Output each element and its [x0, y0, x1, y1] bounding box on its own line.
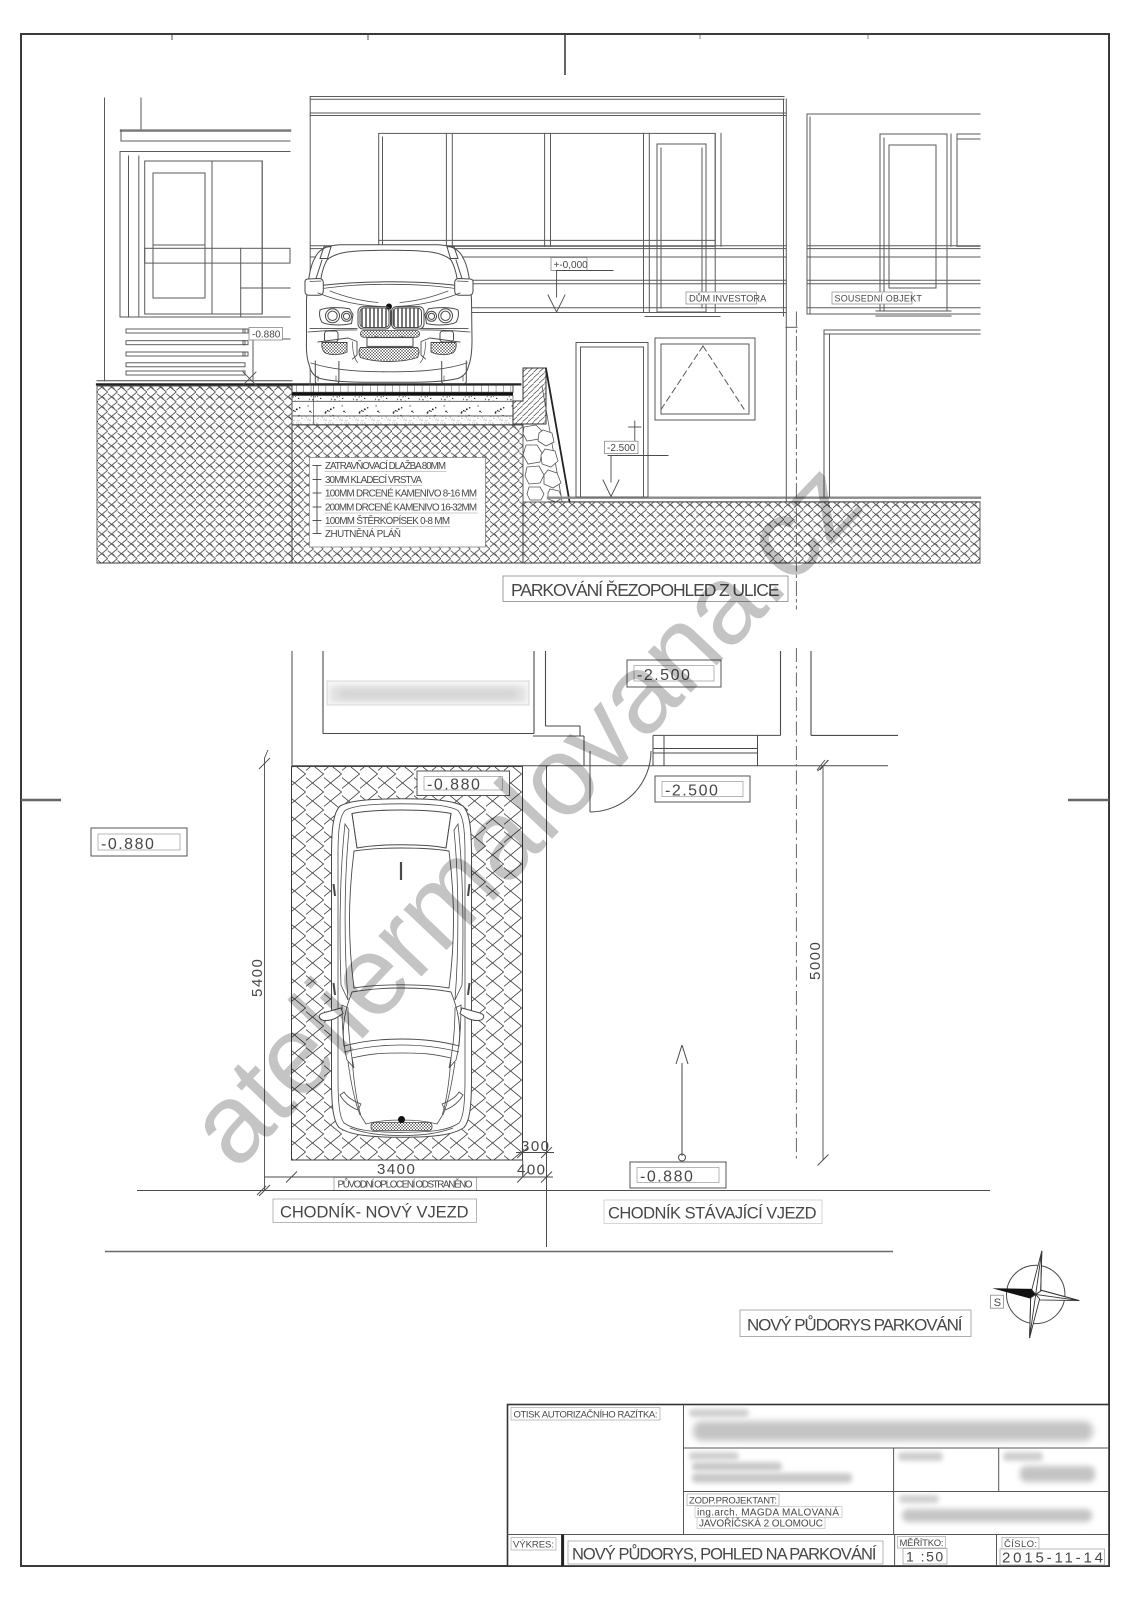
svg-text:OTISK AUTORIZAČNÍHO RAZÍTKA:: OTISK AUTORIZAČNÍHO RAZÍTKA:: [514, 1410, 658, 1421]
svg-text:VÝKRES:: VÝKRES:: [513, 1540, 554, 1551]
svg-text:5000: 5000: [807, 941, 824, 980]
svg-text:400: 400: [517, 1162, 547, 1179]
svg-text:ZHUTNĚNÁ PLÁŇ: ZHUTNĚNÁ PLÁŇ: [325, 529, 401, 540]
svg-text:S: S: [994, 1297, 1001, 1309]
svg-text:-0.880: -0.880: [252, 330, 281, 341]
svg-text:-2.500: -2.500: [665, 783, 719, 800]
svg-text:3400: 3400: [377, 1161, 416, 1178]
svg-text:-2.500: -2.500: [607, 443, 636, 454]
svg-text:PŮVODNÍ OPLOCENÍ ODSTRANĚNO: PŮVODNÍ OPLOCENÍ ODSTRANĚNO: [338, 1179, 473, 1191]
svg-text:NOVÝ PŮDORYS PARKOVÁNÍ: NOVÝ PŮDORYS PARKOVÁNÍ: [747, 1316, 964, 1335]
svg-text:SOUSEDNÍ OBJEKT: SOUSEDNÍ OBJEKT: [835, 294, 923, 304]
svg-text:1 :50: 1 :50: [906, 1549, 945, 1565]
svg-text:ing.arch. MAGDA MALOVANÁ: ing.arch. MAGDA MALOVANÁ: [697, 1506, 839, 1519]
svg-text:200MM DRCENÉ KAMENIVO 16-32MM: 200MM DRCENÉ KAMENIVO 16-32MM: [325, 503, 477, 514]
svg-text:NOVÝ PŮDORYS, POHLED NA PARKOV: NOVÝ PŮDORYS, POHLED NA PARKOVÁNÍ: [572, 1545, 878, 1564]
svg-text:JAVOŘÍČSKÁ 2 OLOMOUC: JAVOŘÍČSKÁ 2 OLOMOUC: [699, 1517, 823, 1530]
svg-text:ZATRAVŇOVACÍ DLAŽBA 80MM: ZATRAVŇOVACÍ DLAŽBA 80MM: [325, 461, 446, 472]
svg-text:100MM DRCENÉ KAMENIVO 8-16 MM: 100MM DRCENÉ KAMENIVO 8-16 MM: [325, 489, 477, 500]
svg-text:ČÍSLO:: ČÍSLO:: [1004, 1539, 1037, 1550]
svg-text:DŮM INVESTORA: DŮM INVESTORA: [689, 293, 767, 304]
svg-text:30MM KLADECÍ VRSTVA: 30MM KLADECÍ VRSTVA: [325, 475, 422, 486]
svg-text:300: 300: [521, 1138, 551, 1155]
svg-text:CHODNÍK- NOVÝ VJEZD: CHODNÍK- NOVÝ VJEZD: [280, 1203, 470, 1222]
svg-text:100MM ŠTĚRKOPÍSEK 0-8 MM: 100MM ŠTĚRKOPÍSEK 0-8 MM: [325, 516, 450, 527]
svg-text:-0.880: -0.880: [101, 836, 155, 853]
svg-text:-0.880: -0.880: [640, 1169, 694, 1186]
svg-text:CHODNÍK STÁVAJÍCÍ VJEZD: CHODNÍK STÁVAJÍCÍ VJEZD: [608, 1204, 818, 1223]
svg-text:ZODP.PROJEKTANT:: ZODP.PROJEKTANT:: [689, 1496, 777, 1507]
svg-text:MĚŘÍTKO:: MĚŘÍTKO:: [900, 1538, 944, 1549]
svg-text:5400: 5400: [249, 958, 266, 997]
svg-text:+-0,000: +-0,000: [554, 260, 589, 271]
